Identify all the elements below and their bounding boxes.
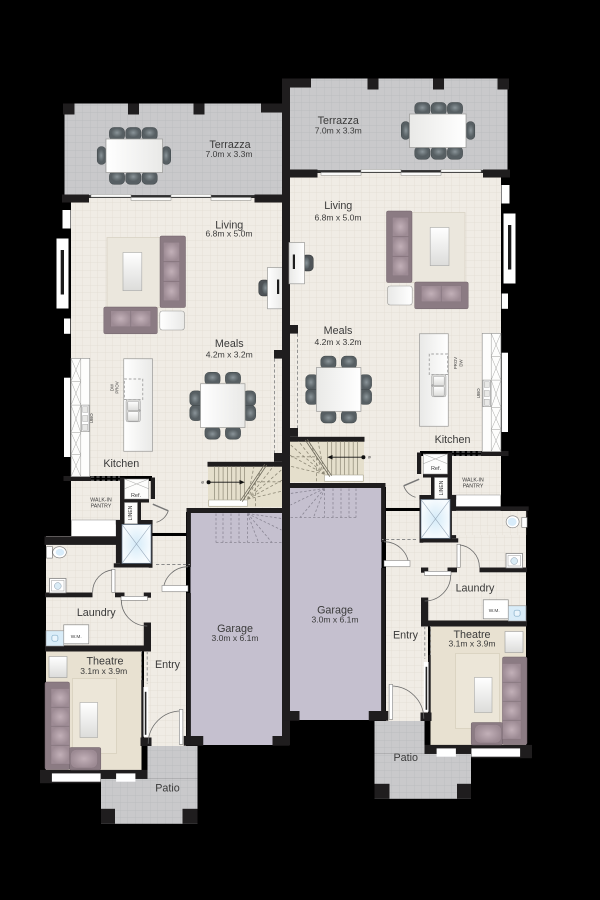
svg-text:Entry: Entry bbox=[155, 659, 181, 671]
svg-text:Laundry: Laundry bbox=[456, 583, 495, 595]
svg-text:Living: Living bbox=[324, 200, 352, 212]
svg-text:UBO: UBO bbox=[89, 413, 94, 423]
svg-text:Patio: Patio bbox=[393, 752, 418, 764]
svg-text:DW: DW bbox=[458, 358, 463, 366]
svg-text:3.0m x 6.1m: 3.0m x 6.1m bbox=[211, 633, 258, 643]
svg-text:PROV: PROV bbox=[453, 357, 458, 369]
svg-text:WALK-IN: WALK-IN bbox=[462, 478, 484, 484]
svg-text:Laundry: Laundry bbox=[77, 607, 116, 619]
svg-text:PANTRY: PANTRY bbox=[463, 484, 484, 490]
svg-text:PANTRY: PANTRY bbox=[91, 504, 112, 510]
svg-text:LINEN: LINEN bbox=[128, 505, 134, 520]
svg-text:Kitchen: Kitchen bbox=[435, 434, 471, 446]
svg-text:3.1m x 3.9m: 3.1m x 3.9m bbox=[448, 639, 495, 649]
svg-text:6.8m x 5.0m: 6.8m x 5.0m bbox=[205, 229, 252, 239]
svg-text:UBO: UBO bbox=[476, 388, 481, 398]
svg-text:Entry: Entry bbox=[393, 629, 419, 641]
svg-text:6: 6 bbox=[367, 456, 372, 459]
svg-text:4.2m x 3.2m: 4.2m x 3.2m bbox=[206, 349, 253, 359]
svg-text:LINEN: LINEN bbox=[439, 480, 445, 495]
svg-text:6.8m x 5.0m: 6.8m x 5.0m bbox=[314, 213, 361, 223]
svg-text:4.2m x 3.2m: 4.2m x 3.2m bbox=[314, 337, 361, 347]
svg-text:7.0m x 3.3m: 7.0m x 3.3m bbox=[205, 149, 252, 159]
svg-text:7.0m x 3.3m: 7.0m x 3.3m bbox=[315, 126, 362, 136]
svg-text:Ref.: Ref. bbox=[431, 466, 442, 472]
svg-text:W.M.: W.M. bbox=[489, 608, 500, 614]
svg-text:3.1m x 3.9m: 3.1m x 3.9m bbox=[80, 666, 127, 676]
svg-text:6: 6 bbox=[200, 481, 205, 484]
svg-text:PROV: PROV bbox=[115, 381, 120, 393]
svg-text:WALK-IN: WALK-IN bbox=[90, 498, 112, 504]
svg-text:Meals: Meals bbox=[215, 338, 244, 350]
svg-text:Kitchen: Kitchen bbox=[103, 458, 139, 470]
svg-text:W.M.: W.M. bbox=[71, 634, 82, 640]
svg-text:Patio: Patio bbox=[155, 783, 180, 795]
svg-text:3.0m x 6.1m: 3.0m x 6.1m bbox=[311, 615, 358, 625]
svg-text:Meals: Meals bbox=[324, 325, 353, 337]
svg-text:Ref.: Ref. bbox=[131, 493, 142, 499]
